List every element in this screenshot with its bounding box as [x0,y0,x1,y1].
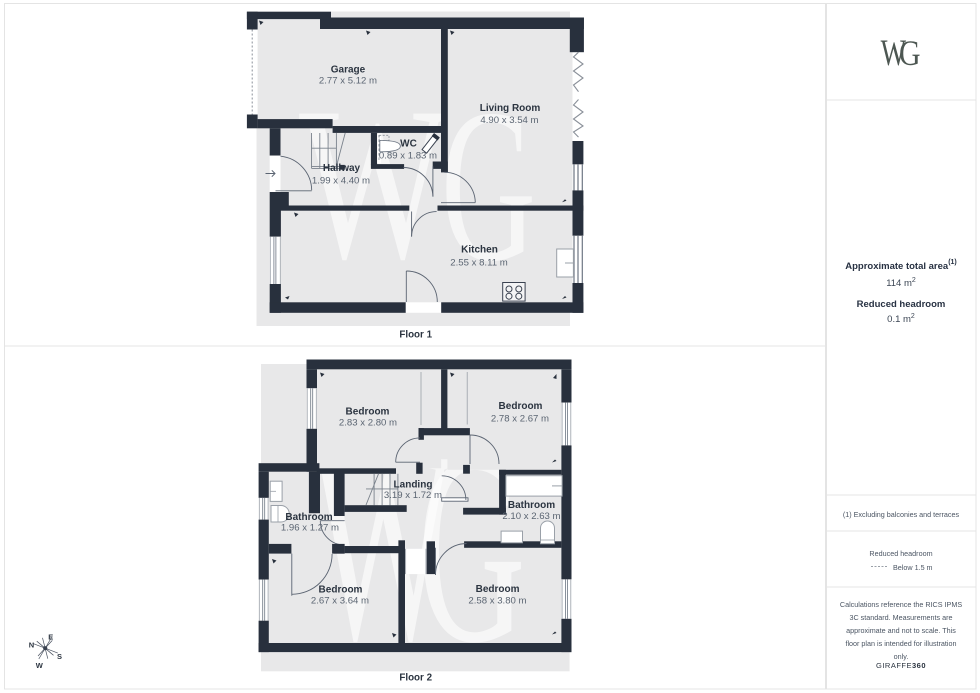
svg-text:Bathroom: Bathroom [508,500,555,511]
svg-text:Bedroom: Bedroom [476,584,520,595]
svg-text:Below 1.5 m: Below 1.5 m [893,563,933,572]
svg-text:E: E [48,632,53,641]
svg-text:3C standard. Measurements are: 3C standard. Measurements are [849,613,952,622]
svg-text:2.55 x 8.11 m: 2.55 x 8.11 m [450,258,507,269]
svg-text:2.67 x 3.64 m: 2.67 x 3.64 m [311,596,369,607]
svg-text:Bathroom: Bathroom [285,512,332,523]
svg-text:0.89 x 1.83 m: 0.89 x 1.83 m [379,151,437,162]
svg-text:114 m2: 114 m2 [886,277,916,289]
svg-text:G: G [899,35,921,74]
svg-text:Reduced headroom: Reduced headroom [869,549,932,558]
svg-text:1.96 x 1.27 m: 1.96 x 1.27 m [281,523,339,534]
svg-text:Floor 2: Floor 2 [399,673,432,684]
svg-text:(1) Excluding balconies and te: (1) Excluding balconies and terraces [843,510,960,519]
svg-text:Floor 1: Floor 1 [399,330,432,341]
svg-text:only.: only. [894,652,909,661]
svg-text:0.1 m2: 0.1 m2 [887,313,915,325]
svg-text:2.83 x 2.80 m: 2.83 x 2.80 m [339,418,397,429]
svg-text:GIRAFFE360: GIRAFFE360 [876,661,926,670]
svg-text:2.78 x 2.67 m: 2.78 x 2.67 m [491,414,549,425]
svg-text:Calculations reference the RIC: Calculations reference the RICS IPMS [840,600,962,609]
svg-text:Living Room: Living Room [480,103,541,114]
svg-text:Bedroom: Bedroom [319,585,363,596]
svg-text:WC: WC [400,139,417,150]
svg-text:Approximate total area(1): Approximate total area(1) [845,259,957,272]
svg-text:Bedroom: Bedroom [346,407,390,418]
svg-text:Kitchen: Kitchen [461,245,498,256]
svg-text:3.19 x 1.72 m: 3.19 x 1.72 m [384,490,442,501]
svg-text:floor plan is intended for ill: floor plan is intended for illustration [845,639,956,648]
svg-text:S: S [57,652,62,661]
svg-text:4.90 x 3.54 m: 4.90 x 3.54 m [480,115,538,126]
svg-text:2.58 x 3.80 m: 2.58 x 3.80 m [468,596,526,607]
svg-text:approximate and not to scale.: approximate and not to scale. This [846,626,956,635]
svg-text:Landing: Landing [394,480,433,491]
svg-text:2.77 x 5.12 m: 2.77 x 5.12 m [319,76,377,87]
svg-text:1.99 x 4.40 m: 1.99 x 4.40 m [312,176,370,187]
svg-text:G: G [441,65,536,308]
svg-text:Hallway: Hallway [323,163,361,174]
svg-text:W: W [36,661,44,670]
svg-text:Garage: Garage [331,65,366,76]
svg-text:Reduced headroom: Reduced headroom [857,299,946,310]
svg-text:2.10 x 2.63 m: 2.10 x 2.63 m [502,511,560,522]
svg-text:Bedroom: Bedroom [499,401,543,412]
svg-text:N: N [29,640,34,649]
